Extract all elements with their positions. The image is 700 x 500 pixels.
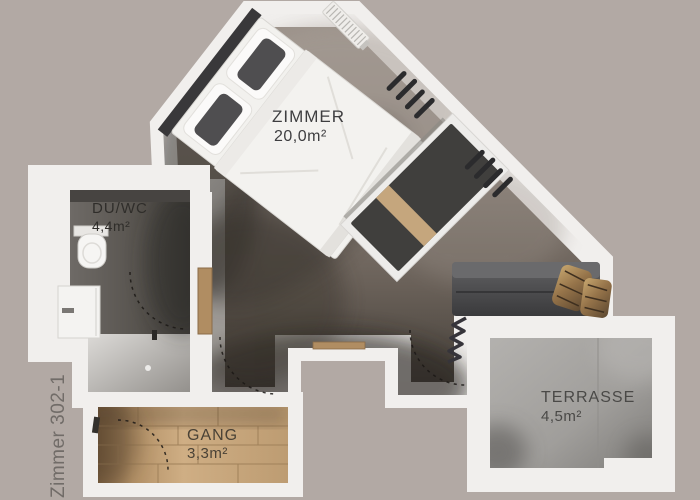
room-label-gang-area: 3,3m² [187,445,228,462]
shower-fixture [152,330,157,340]
room-label-duwc-name: DU/WC [92,200,148,217]
sofa [452,262,613,319]
floor-plan: ZIMMER 20,0m² DU/WC 4,4m² GANG 3,3m² TER… [0,0,700,500]
unit-label: Zimmer 302-1 [48,374,69,498]
room-label-terrasse-area: 4,5m² [541,408,582,425]
room-label-terrasse-name: TERRASSE [541,389,635,406]
shower-floor [88,334,190,398]
terrace-step [604,458,652,468]
bronze-pillow [579,277,612,319]
room-label-gang-name: GANG [187,427,238,444]
floor-plan-page: ZIMMER 20,0m² DU/WC 4,4m² GANG 3,3m² TER… [0,0,700,500]
bathroom-door-frame [198,268,212,334]
room-label-zimmer-area: 20,0m² [274,128,327,145]
shower-drain [145,365,151,371]
door-threshold [313,342,365,349]
sink-cabinet [58,286,100,338]
room-label-zimmer-name: ZIMMER [272,107,345,126]
room-label-duwc-area: 4,4m² [92,218,130,234]
